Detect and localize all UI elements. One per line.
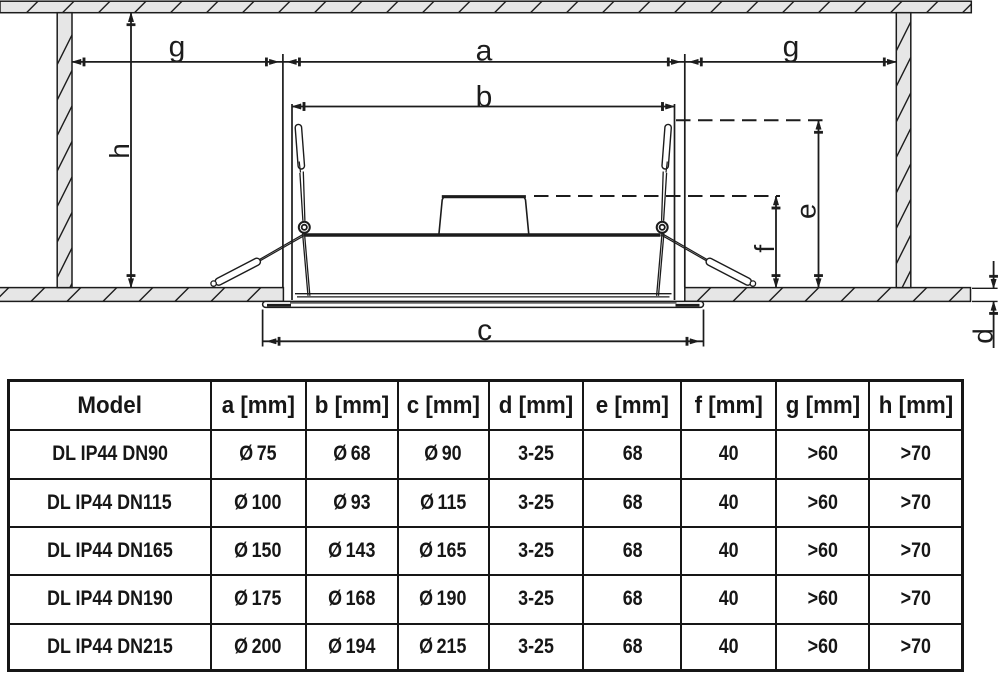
svg-text:g: g xyxy=(783,30,800,63)
svg-text:f: f xyxy=(749,245,780,253)
svg-text:g: g xyxy=(169,30,186,63)
svg-text:c: c xyxy=(477,314,492,347)
svg-text:h: h xyxy=(104,143,135,159)
svg-text:e: e xyxy=(791,203,822,219)
svg-text:a: a xyxy=(476,34,493,67)
svg-text:d: d xyxy=(968,328,999,344)
svg-text:b: b xyxy=(476,80,493,113)
